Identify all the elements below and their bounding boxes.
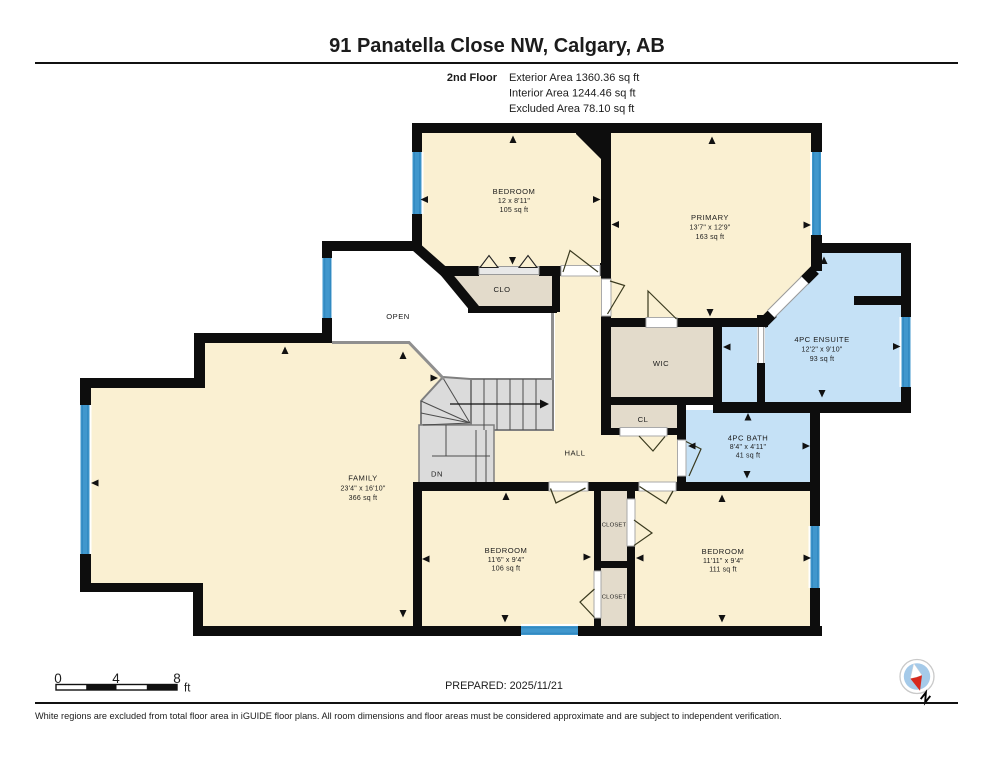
svg-text:WIC: WIC: [653, 359, 669, 368]
svg-text:CLO: CLO: [493, 285, 510, 294]
svg-text:FAMILY: FAMILY: [348, 474, 377, 483]
svg-text:12'2" x 9'10": 12'2" x 9'10": [802, 347, 843, 354]
svg-text:OPEN: OPEN: [386, 312, 410, 321]
svg-text:HALL: HALL: [565, 449, 586, 458]
svg-text:2nd Floor: 2nd Floor: [447, 72, 498, 84]
svg-text:ft: ft: [184, 683, 191, 695]
svg-text:23'4" x 16'10": 23'4" x 16'10": [340, 486, 385, 493]
svg-text:CLOSET: CLOSET: [602, 595, 627, 601]
svg-text:4: 4: [112, 671, 120, 686]
svg-text:DN: DN: [431, 470, 443, 479]
svg-text:11'6" x 9'4": 11'6" x 9'4": [488, 557, 525, 564]
svg-text:11'11" x 9'4": 11'11" x 9'4": [703, 558, 743, 565]
svg-text:163 sq ft: 163 sq ft: [696, 234, 725, 241]
svg-text:Excluded Area 78.10 sq ft: Excluded Area 78.10 sq ft: [509, 103, 634, 115]
svg-text:PRIMARY: PRIMARY: [691, 213, 729, 222]
svg-text:Exterior Area 1360.36 sq ft: Exterior Area 1360.36 sq ft: [509, 72, 639, 84]
svg-text:366 sq ft: 366 sq ft: [349, 495, 378, 502]
svg-text:4PC ENSUITE: 4PC ENSUITE: [794, 335, 849, 344]
svg-text:BEDROOM: BEDROOM: [493, 187, 536, 196]
svg-text:White regions are excluded fro: White regions are excluded from total fl…: [35, 711, 782, 721]
svg-text:12 x 8'11": 12 x 8'11": [498, 198, 530, 205]
svg-text:111 sq ft: 111 sq ft: [709, 567, 737, 574]
svg-text:91 Panatella Close NW, Calgary: 91 Panatella Close NW, Calgary, AB: [329, 35, 665, 57]
svg-text:13'7" x 12'9": 13'7" x 12'9": [690, 225, 731, 232]
svg-text:41 sq ft: 41 sq ft: [736, 453, 761, 460]
svg-text:4PC BATH: 4PC BATH: [728, 434, 769, 443]
svg-text:8: 8: [173, 671, 181, 686]
svg-text:CLOSET: CLOSET: [602, 523, 627, 529]
svg-text:8'4" x 4'11": 8'4" x 4'11": [730, 444, 767, 451]
svg-text:0: 0: [54, 671, 62, 686]
svg-text:BEDROOM: BEDROOM: [702, 547, 745, 556]
svg-text:PREPARED: 2025/11/21: PREPARED: 2025/11/21: [445, 680, 563, 692]
svg-text:93 sq ft: 93 sq ft: [810, 356, 835, 363]
svg-text:105 sq ft: 105 sq ft: [500, 207, 529, 214]
svg-text:Interior Area 1244.46 sq ft: Interior Area 1244.46 sq ft: [509, 88, 636, 100]
svg-text:BEDROOM: BEDROOM: [485, 546, 528, 555]
svg-text:106 sq ft: 106 sq ft: [492, 566, 521, 573]
svg-text:CL: CL: [638, 415, 649, 424]
